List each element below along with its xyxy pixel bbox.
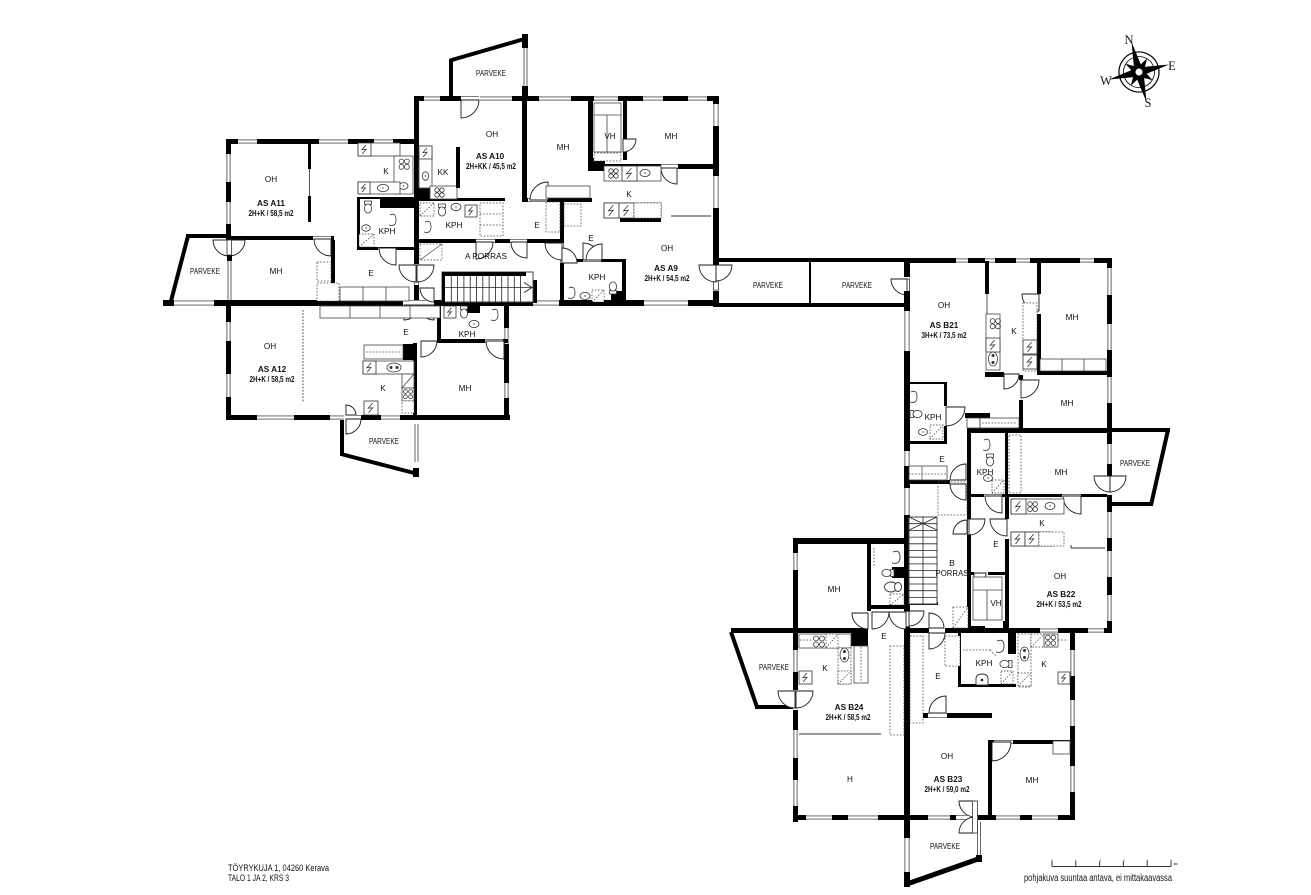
- svg-text:MH: MH: [665, 132, 678, 141]
- svg-text:E: E: [588, 234, 594, 243]
- svg-text:2H+K / 58,5 m2: 2H+K / 58,5 m2: [249, 209, 294, 218]
- svg-text:E: E: [1168, 59, 1176, 73]
- svg-text:2H+K / 58,5 m2: 2H+K / 58,5 m2: [250, 375, 295, 384]
- svg-text:PARVEKE: PARVEKE: [930, 842, 960, 851]
- svg-text:OH: OH: [661, 244, 673, 253]
- svg-text:MH: MH: [1026, 776, 1039, 785]
- svg-text:VH: VH: [990, 599, 1001, 608]
- svg-text:H: H: [847, 775, 853, 784]
- svg-text:KPH: KPH: [977, 468, 994, 477]
- svg-text:2H+KK / 45,5 m2: 2H+KK / 45,5 m2: [466, 162, 516, 171]
- svg-text:PARVEKE: PARVEKE: [369, 437, 399, 446]
- svg-text:MH: MH: [828, 585, 841, 594]
- svg-text:AS A12: AS A12: [258, 365, 287, 374]
- svg-text:OH: OH: [486, 130, 498, 139]
- svg-text:MH: MH: [270, 267, 283, 276]
- svg-text:MH: MH: [1061, 399, 1074, 408]
- svg-text:pohjakuva suuntaa antava, ei m: pohjakuva suuntaa antava, ei mittakaavas…: [1024, 873, 1172, 884]
- svg-text:E: E: [403, 328, 409, 337]
- svg-text:VH: VH: [604, 132, 615, 141]
- svg-text:K: K: [383, 167, 389, 176]
- svg-text:E: E: [881, 632, 887, 641]
- svg-text:3H+K / 73,5 m2: 3H+K / 73,5 m2: [922, 331, 967, 340]
- svg-text:MH: MH: [1055, 468, 1068, 477]
- svg-text:K: K: [1011, 327, 1017, 336]
- svg-text:OH: OH: [938, 301, 950, 310]
- svg-text:K: K: [1041, 660, 1047, 669]
- svg-text:AS A10: AS A10: [476, 152, 505, 161]
- svg-text:B: B: [949, 558, 955, 568]
- svg-text:K: K: [1039, 519, 1045, 528]
- svg-text:KPH: KPH: [925, 413, 942, 422]
- svg-text:PARVEKE: PARVEKE: [476, 69, 506, 78]
- svg-text:A PORRAS: A PORRAS: [465, 251, 507, 261]
- svg-text:E: E: [993, 540, 999, 549]
- svg-text:PARVEKE: PARVEKE: [1120, 459, 1150, 468]
- svg-text:PORRAS: PORRAS: [936, 568, 969, 578]
- svg-text:AS A11: AS A11: [257, 199, 285, 208]
- svg-text:W: W: [1100, 74, 1112, 88]
- svg-text:AS B21: AS B21: [930, 321, 959, 330]
- svg-text:OH: OH: [941, 752, 953, 761]
- svg-text:OH: OH: [265, 175, 277, 184]
- svg-text:2H+K / 59,0 m2: 2H+K / 59,0 m2: [925, 785, 970, 794]
- svg-text:E: E: [939, 455, 945, 464]
- svg-text:KPH: KPH: [589, 273, 606, 282]
- svg-text:AS B24: AS B24: [835, 703, 864, 712]
- svg-text:K: K: [380, 384, 386, 393]
- svg-text:KPH: KPH: [379, 227, 396, 236]
- svg-text:MH: MH: [1066, 313, 1079, 322]
- svg-text:E: E: [368, 269, 374, 278]
- svg-text:2H+K / 53,5 m2: 2H+K / 53,5 m2: [1037, 600, 1082, 609]
- svg-text:S: S: [1145, 96, 1152, 110]
- svg-text:OH: OH: [1054, 572, 1066, 581]
- svg-text:E: E: [534, 221, 540, 230]
- svg-text:MH: MH: [459, 384, 472, 393]
- svg-text:2H+K / 58,5 m2: 2H+K / 58,5 m2: [826, 713, 871, 722]
- svg-text:TALO 1 JA 2, KRS 3: TALO 1 JA 2, KRS 3: [228, 873, 289, 884]
- svg-text:N: N: [1124, 33, 1133, 47]
- svg-text:PARVEKE: PARVEKE: [190, 267, 220, 276]
- svg-text:AS A9: AS A9: [654, 264, 678, 273]
- svg-text:PARVEKE: PARVEKE: [759, 663, 789, 672]
- svg-text:KK: KK: [438, 168, 449, 177]
- svg-text:2H+K / 54,5 m2: 2H+K / 54,5 m2: [645, 274, 690, 283]
- svg-text:KPH: KPH: [459, 330, 476, 339]
- svg-text:KPH: KPH: [446, 221, 463, 230]
- svg-text:MH: MH: [557, 143, 570, 152]
- svg-text:KPH: KPH: [976, 659, 993, 668]
- svg-text:AS B23: AS B23: [934, 775, 963, 784]
- svg-text:K: K: [822, 664, 828, 673]
- svg-text:AS B22: AS B22: [1047, 590, 1076, 599]
- svg-text:PARVEKE: PARVEKE: [753, 281, 783, 290]
- svg-text:PARVEKE: PARVEKE: [842, 281, 872, 290]
- svg-text:E: E: [935, 672, 941, 681]
- svg-text:OH: OH: [264, 342, 276, 351]
- svg-text:K: K: [626, 190, 632, 199]
